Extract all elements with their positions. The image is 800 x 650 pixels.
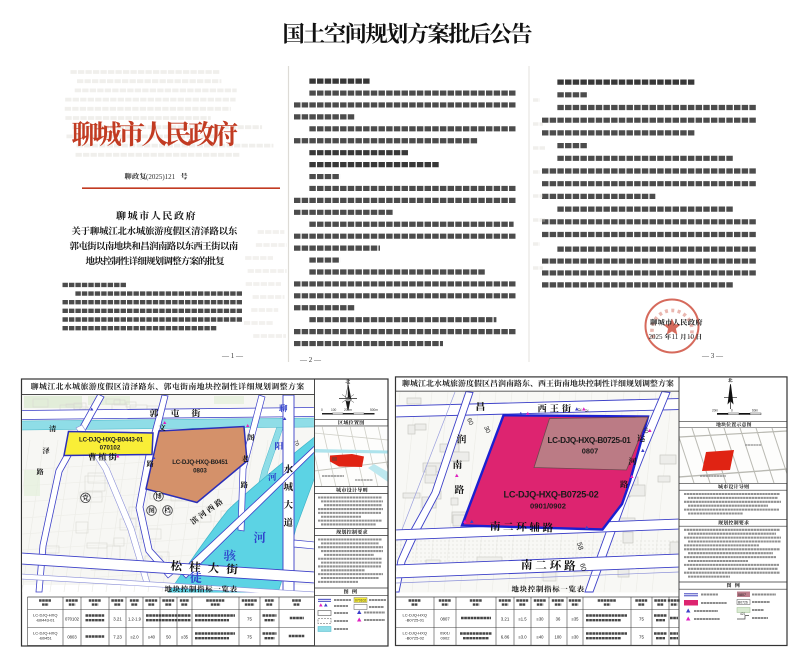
svg-text:100: 100 — [555, 635, 563, 640]
svg-text:0: 0 — [321, 408, 323, 412]
svg-text:0803: 0803 — [193, 468, 207, 475]
svg-text:50: 50 — [166, 635, 171, 640]
svg-text:36: 36 — [556, 617, 561, 622]
svg-text:0902: 0902 — [441, 636, 451, 641]
svg-text:6.86: 6.86 — [501, 635, 510, 640]
svg-text:LC-DJQ-HXQ-B0725-02: LC-DJQ-HXQ-B0725-02 — [504, 490, 599, 500]
svg-text:2025: 2025 — [649, 333, 664, 341]
svg-text:LC-DJQ-HXQ-B0443-01: LC-DJQ-HXQ-B0443-01 — [79, 437, 144, 444]
svg-text:≤3.0: ≤3.0 — [518, 635, 527, 640]
svg-text:(2025)121: (2025)121 — [146, 173, 176, 181]
svg-text:75: 75 — [247, 617, 252, 622]
svg-text:75: 75 — [247, 635, 252, 640]
svg-text:— 3 —: — 3 — — [701, 352, 724, 360]
svg-text:≤2.0: ≤2.0 — [130, 635, 139, 640]
svg-text:≥35: ≥35 — [572, 617, 580, 622]
svg-text:— 1 —: — 1 — — [221, 352, 244, 360]
svg-text:10: 10 — [687, 333, 695, 341]
svg-text:≤40: ≤40 — [537, 635, 545, 640]
svg-text:-B0443-01: -B0443-01 — [36, 618, 55, 623]
svg-text:3.21: 3.21 — [113, 617, 122, 622]
svg-text:-B0725-01: -B0725-01 — [405, 618, 424, 623]
svg-text:≥30: ≥30 — [572, 635, 580, 640]
svg-text:070102: 070102 — [100, 445, 121, 452]
svg-text:3.21: 3.21 — [501, 617, 510, 622]
svg-text:75: 75 — [639, 617, 644, 622]
svg-text:0807: 0807 — [738, 593, 746, 597]
svg-text:≥35: ≥35 — [181, 635, 189, 640]
svg-text:≤30: ≤30 — [537, 617, 545, 622]
svg-text:0807: 0807 — [440, 617, 450, 622]
svg-text:0807: 0807 — [582, 447, 598, 456]
svg-text:200m: 200m — [344, 408, 352, 412]
svg-text:0803: 0803 — [67, 635, 77, 640]
svg-text:421: 421 — [740, 612, 746, 616]
svg-text:≤40: ≤40 — [148, 635, 156, 640]
svg-text:LC-DJQ-HXQ-B0451: LC-DJQ-HXQ-B0451 — [172, 459, 228, 466]
svg-text:1.2-1.9: 1.2-1.9 — [128, 617, 142, 622]
svg-text:0: 0 — [731, 409, 733, 413]
svg-text:75: 75 — [639, 635, 644, 640]
svg-text:500m: 500m — [370, 408, 378, 412]
svg-text:-B0725-02: -B0725-02 — [405, 636, 424, 641]
svg-text:≤1.5: ≤1.5 — [518, 617, 527, 622]
svg-text:070102: 070102 — [65, 617, 80, 622]
svg-text:LC-DJQ-HXQ-B0725-01: LC-DJQ-HXQ-B0725-01 — [548, 436, 632, 445]
svg-text:60m: 60m — [752, 409, 759, 413]
svg-text:B0726: B0726 — [738, 601, 748, 605]
svg-text:100: 100 — [331, 408, 337, 412]
svg-text:≈: ≈ — [585, 408, 589, 415]
svg-text:-B0451: -B0451 — [39, 636, 53, 641]
svg-text:— 2 —: — 2 — — [299, 356, 322, 364]
svg-text:7.23: 7.23 — [113, 635, 122, 640]
svg-text:0901/0902: 0901/0902 — [530, 502, 566, 511]
svg-text:11: 11 — [672, 333, 679, 341]
svg-text:070102: 070102 — [355, 599, 366, 603]
svg-text:20m: 20m — [712, 409, 719, 413]
